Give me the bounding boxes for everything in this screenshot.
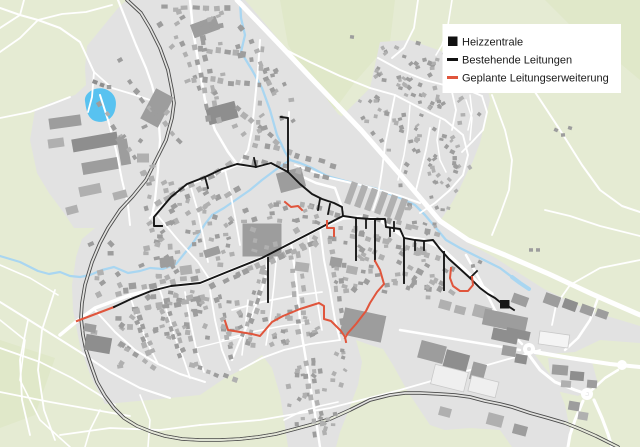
svg-text:Geplante Leitungserweiterung: Geplante Leitungserweiterung [462, 73, 609, 85]
svg-text:Heizzentrale: Heizzentrale [462, 37, 523, 49]
svg-text:Bestehende Leitungen: Bestehende Leitungen [462, 55, 572, 67]
